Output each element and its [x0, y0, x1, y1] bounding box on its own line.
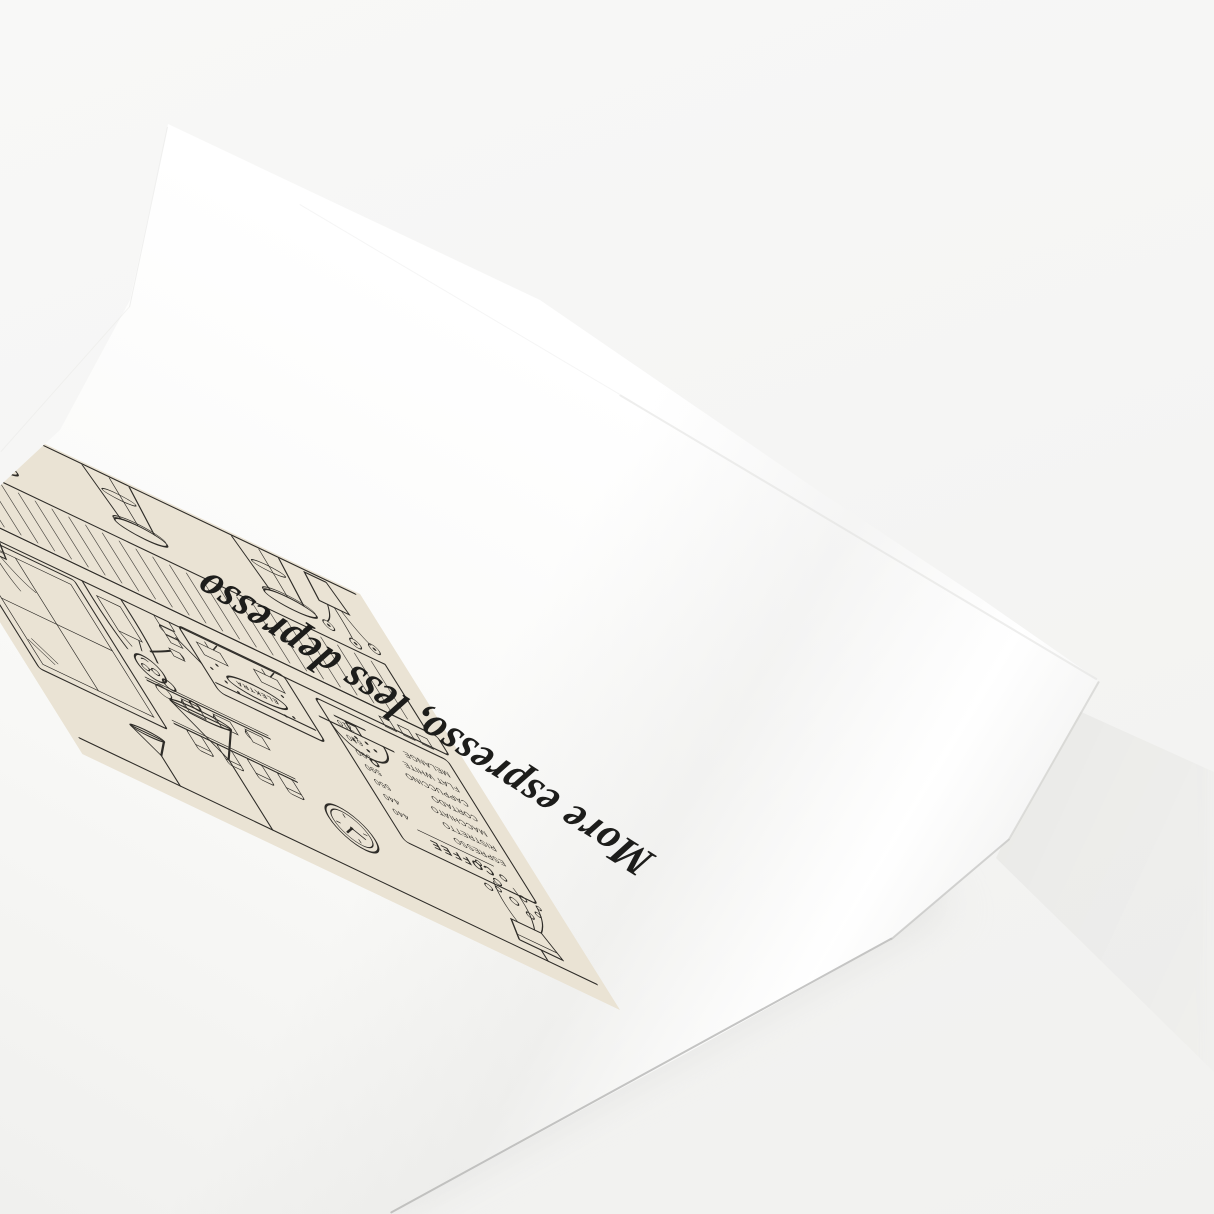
- poster-sheet: COFFEE ESPRESSO 440 RISTRETTO 440 MACCHI…: [0, 0, 1214, 1214]
- bar-stool: [0, 393, 22, 481]
- mockup-scene: COFFEE ESPRESSO 440 RISTRETTO 440 MACCHI…: [0, 0, 1214, 1214]
